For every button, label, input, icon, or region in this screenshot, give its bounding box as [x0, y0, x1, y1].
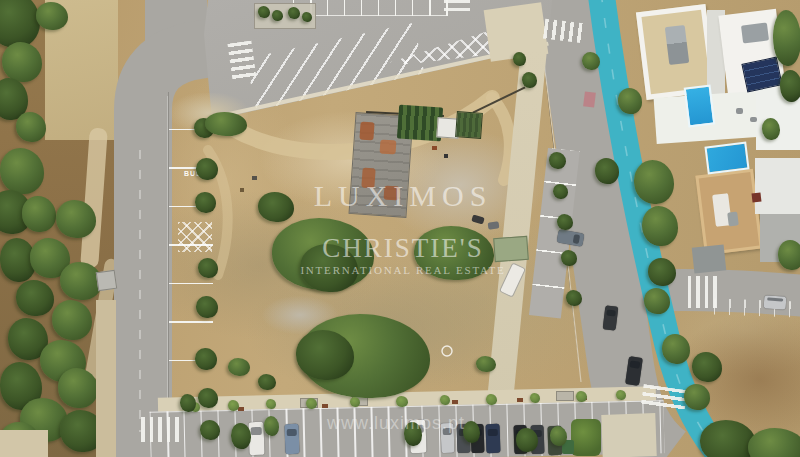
junk-debris — [252, 176, 257, 180]
watermark-url: www.luximos.pt — [327, 413, 465, 434]
street-tree — [557, 214, 573, 230]
tree — [516, 428, 538, 452]
patio-furniture — [750, 117, 757, 122]
street-tree — [196, 158, 218, 180]
curb-marking — [322, 404, 328, 408]
building-white — [755, 158, 800, 214]
street-tree — [576, 391, 587, 402]
dirt-track — [492, 98, 510, 180]
hatched-bay — [178, 222, 212, 252]
street-tree — [616, 390, 626, 400]
street-tree — [440, 395, 450, 405]
sidewalk-corner — [0, 430, 48, 457]
street-tree — [396, 396, 408, 407]
street-tree — [306, 398, 317, 409]
ruin-rust-patch — [359, 122, 374, 141]
swimming-pool — [704, 142, 749, 175]
street-tree — [350, 397, 360, 407]
tree — [463, 421, 480, 443]
street-tree — [200, 420, 220, 440]
parked-car — [764, 295, 787, 310]
street-tree — [198, 258, 218, 278]
street-tree — [198, 388, 218, 408]
tree — [762, 118, 780, 140]
tree-cluster — [748, 428, 800, 457]
rooftop-ac-unit — [727, 211, 739, 226]
sidewalk-strip — [96, 300, 116, 457]
bush — [228, 358, 250, 376]
ruin-rust-patch — [380, 139, 397, 154]
bush — [476, 356, 496, 372]
planter-bush — [302, 12, 312, 22]
tree — [778, 240, 800, 270]
street-tree — [561, 250, 577, 266]
hedge — [571, 419, 601, 456]
curb-marking — [452, 400, 458, 404]
rooftop-ac-units — [741, 22, 769, 43]
curb-marking — [517, 398, 523, 402]
garage-facade — [692, 244, 727, 273]
utility-box — [556, 391, 574, 401]
street-tree — [549, 152, 566, 169]
parking-row-lines — [293, 0, 448, 16]
street-tree — [553, 184, 568, 199]
tree — [773, 10, 800, 66]
street-tree — [228, 400, 239, 411]
tree — [550, 426, 567, 446]
street-tree — [196, 296, 218, 318]
tree — [644, 288, 670, 314]
watermark-brand: LUXIMOS — [300, 181, 505, 211]
parked-car — [284, 424, 299, 454]
watermark: LUXIMOS CHRISTIE'S INTERNATIONAL REAL ES… — [300, 181, 505, 276]
tree — [684, 384, 710, 410]
garden-shack — [96, 270, 117, 291]
green-container — [455, 111, 483, 139]
watermark-brand-secondary: CHRISTIE'S — [300, 235, 505, 262]
junk-debris — [444, 154, 448, 158]
street-tree — [530, 393, 540, 403]
tree — [180, 394, 196, 412]
swimming-pool — [684, 85, 716, 128]
crosswalk — [141, 417, 179, 442]
street-tree — [195, 192, 216, 213]
street-tree — [566, 290, 582, 306]
crosswalk — [444, 0, 470, 16]
tree-cluster — [642, 206, 678, 246]
junk-debris — [432, 146, 437, 150]
red-curb-marking — [583, 91, 596, 107]
tree — [264, 416, 279, 436]
watermark-tagline: INTERNATIONAL REAL ESTATE — [300, 265, 505, 276]
chimney — [751, 192, 761, 202]
tree — [648, 258, 676, 286]
planter-bush — [272, 10, 283, 21]
parked-car — [485, 424, 500, 453]
patio-furniture — [736, 108, 743, 114]
tree — [780, 70, 800, 102]
planter-bush — [288, 7, 300, 19]
junk-debris — [240, 188, 244, 192]
curb-marking — [238, 407, 244, 411]
tree — [513, 52, 526, 66]
tree-cluster — [296, 330, 354, 380]
tree — [231, 423, 251, 449]
tree — [522, 72, 537, 88]
tree — [692, 352, 722, 382]
tree — [582, 52, 600, 70]
crosswalk — [227, 41, 256, 82]
ground-circle-mark — [442, 346, 452, 356]
aerial-photo-vacant-plot: BUS BUS — [0, 0, 800, 457]
street-tree — [266, 399, 276, 409]
tree — [618, 88, 642, 114]
tree — [662, 334, 690, 364]
tree — [595, 158, 619, 184]
tree — [258, 192, 294, 222]
planter-bush — [258, 6, 270, 18]
bush — [258, 374, 276, 390]
tree-cluster — [634, 160, 674, 204]
street-tree — [486, 394, 497, 405]
street-tree — [195, 348, 217, 370]
pavement-patch — [601, 413, 656, 457]
tree-cluster — [205, 112, 247, 136]
